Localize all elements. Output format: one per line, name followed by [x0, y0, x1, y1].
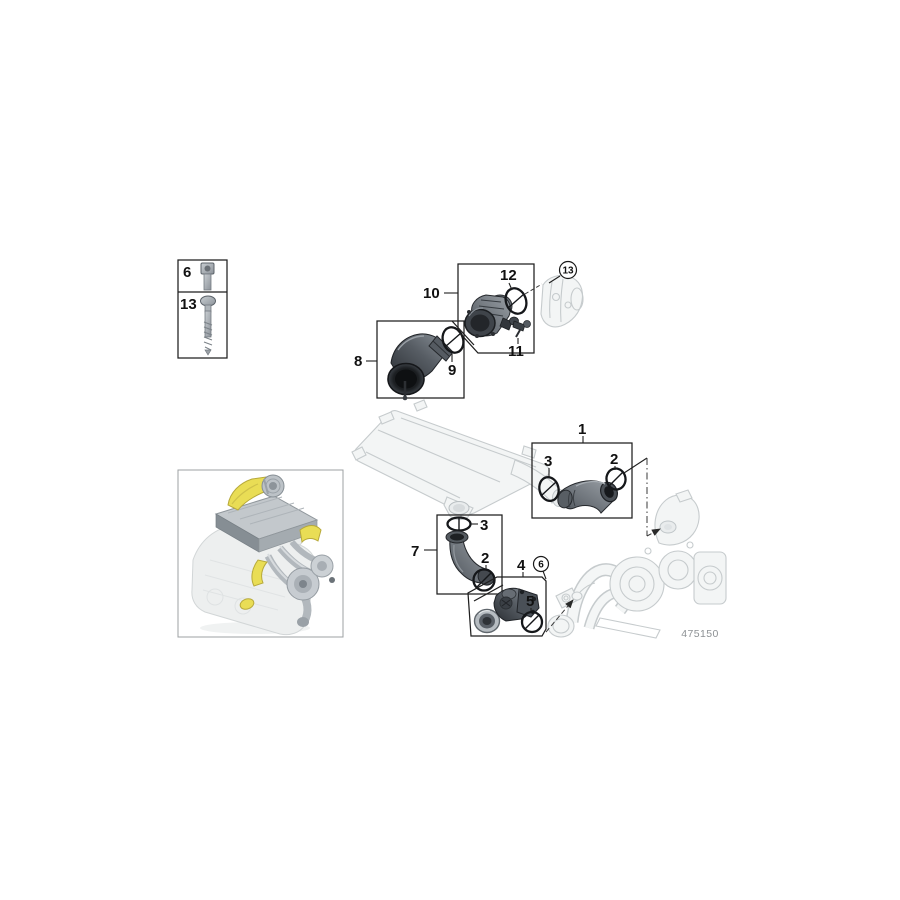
engine-overview-thumbnail — [178, 470, 343, 637]
diagram-code: 475150 — [681, 628, 718, 640]
group-box-1: 1 3 2 — [532, 421, 632, 518]
svg-text:6: 6 — [538, 560, 544, 571]
callout-9[interactable]: 9 — [448, 362, 456, 379]
turbocharger-ghost-drawing — [548, 490, 726, 638]
svg-text:13: 13 — [562, 266, 574, 277]
charge-air-hose-7 — [446, 531, 497, 588]
callout-2[interactable]: 2 — [610, 451, 618, 468]
callout-5[interactable]: 5 — [526, 593, 534, 610]
callout-3b[interactable]: 3 — [480, 517, 488, 534]
callout-12[interactable]: 12 — [500, 267, 517, 284]
callout-10[interactable]: 10 — [423, 285, 440, 302]
sensor-11 — [510, 317, 531, 337]
callout-1[interactable]: 1 — [578, 421, 586, 438]
group-box-8: 8 9 — [354, 321, 467, 400]
fastener-legend-box: 6 13 — [178, 260, 227, 358]
callout-6-legend[interactable]: 6 — [183, 264, 191, 281]
screw-6-icon — [201, 263, 214, 290]
mounting-flange-ghost-13 — [541, 275, 583, 326]
callout-2b[interactable]: 2 — [481, 550, 489, 567]
callout-7[interactable]: 7 — [411, 543, 419, 560]
callout-3[interactable]: 3 — [544, 453, 552, 470]
callout-13-legend[interactable]: 13 — [180, 296, 197, 313]
callout-8[interactable]: 8 — [354, 353, 362, 370]
callout-6-circled[interactable]: 6 — [534, 557, 549, 580]
callout-11[interactable]: 11 — [508, 343, 524, 360]
parts-diagram-canvas: 6 13 8 9 — [0, 0, 900, 900]
callout-4[interactable]: 4 — [517, 557, 526, 574]
screw-13-icon — [201, 296, 216, 355]
diagram-page: 6 13 8 9 — [0, 0, 900, 900]
intercooler-ghost-drawing — [352, 400, 566, 520]
